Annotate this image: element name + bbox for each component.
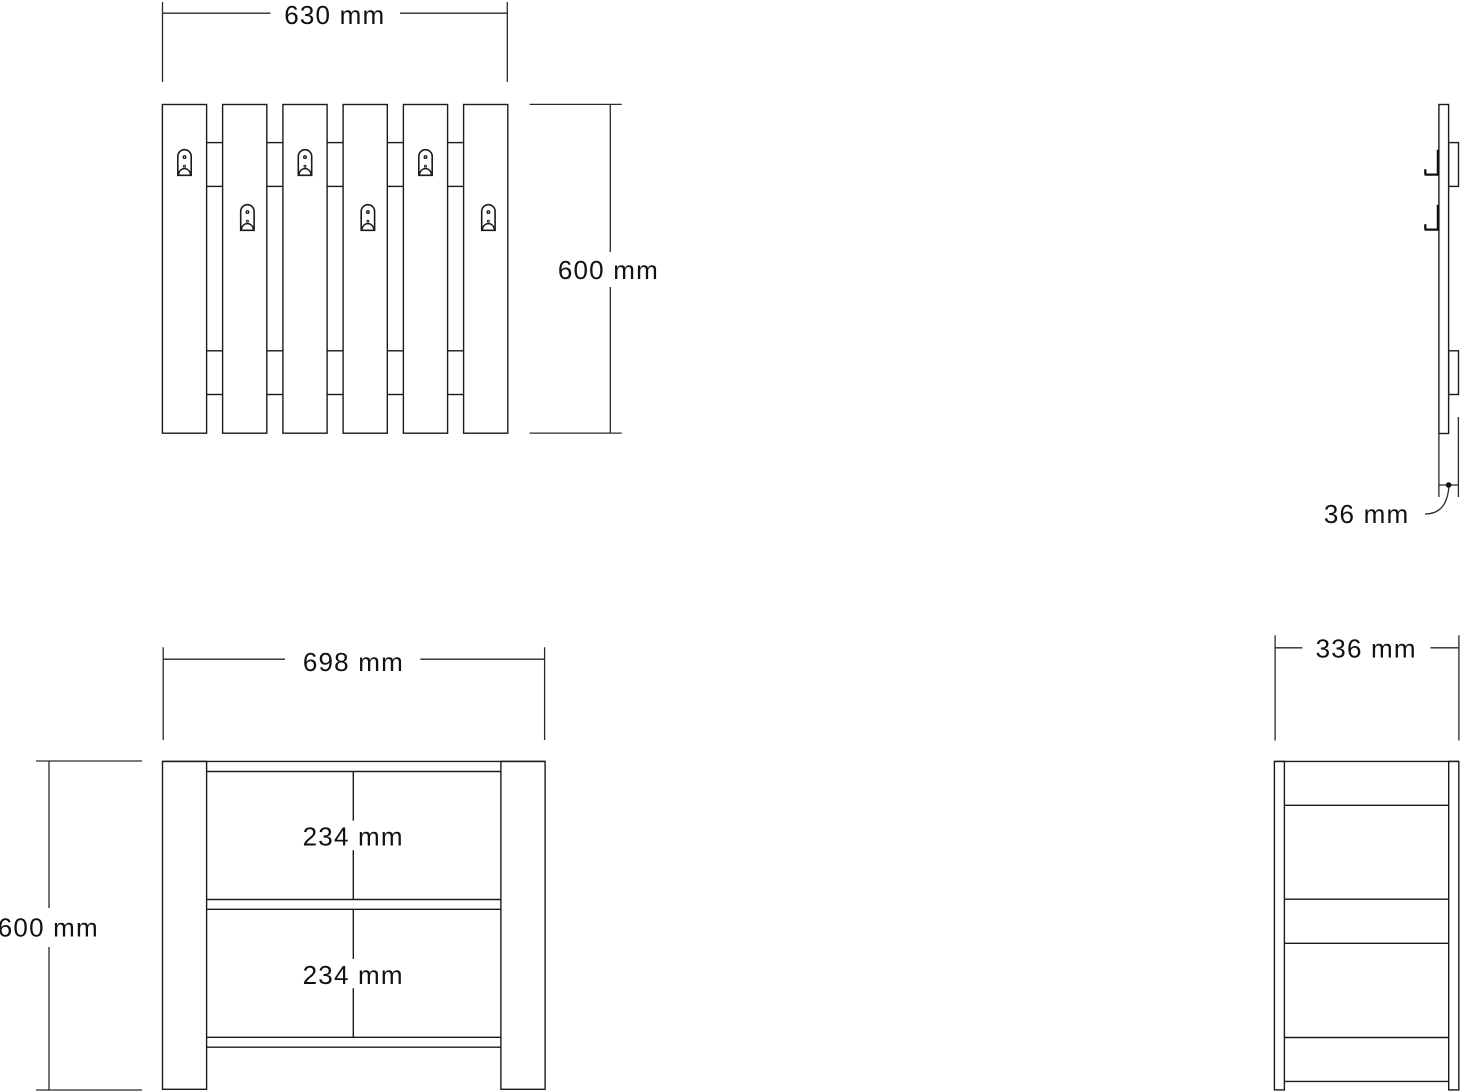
- svg-text:336 mm: 336 mm: [1316, 633, 1417, 663]
- svg-text:600 mm: 600 mm: [0, 913, 99, 943]
- svg-text:600 mm: 600 mm: [558, 255, 659, 285]
- svg-text:698 mm: 698 mm: [303, 647, 404, 677]
- svg-text:234 mm: 234 mm: [303, 822, 404, 852]
- svg-text:36 mm: 36 mm: [1324, 499, 1409, 529]
- svg-text:630 mm: 630 mm: [284, 0, 385, 30]
- svg-text:234 mm: 234 mm: [303, 960, 404, 990]
